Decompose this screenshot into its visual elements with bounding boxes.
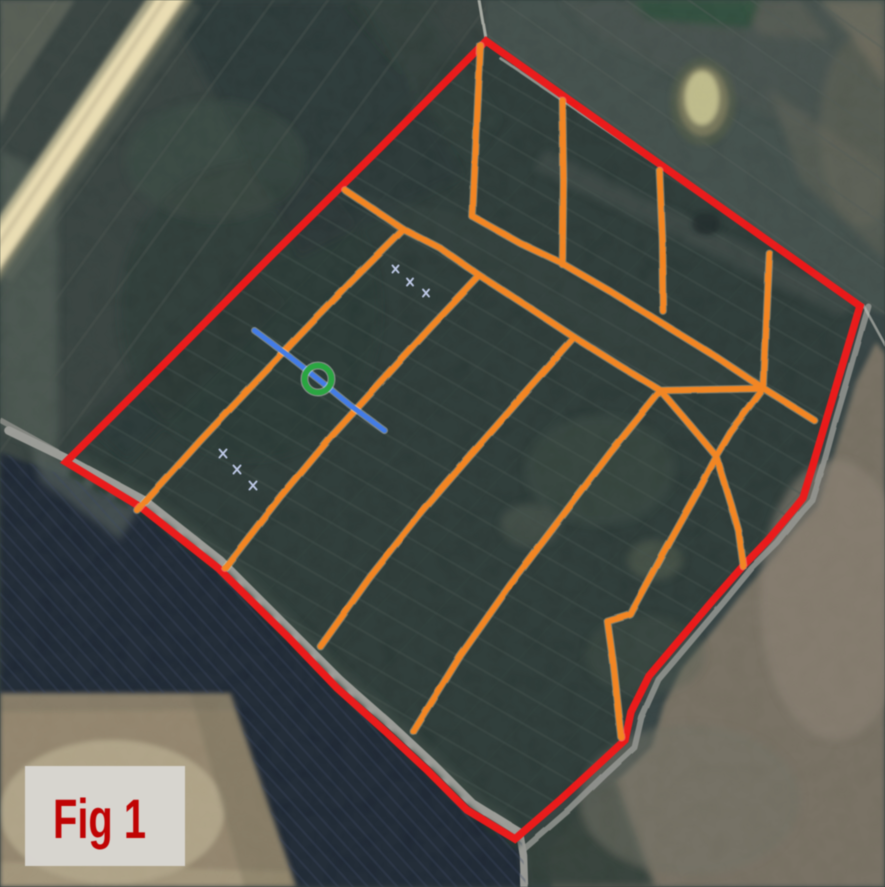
svg-text:Fig 1: Fig 1 xyxy=(53,787,146,850)
